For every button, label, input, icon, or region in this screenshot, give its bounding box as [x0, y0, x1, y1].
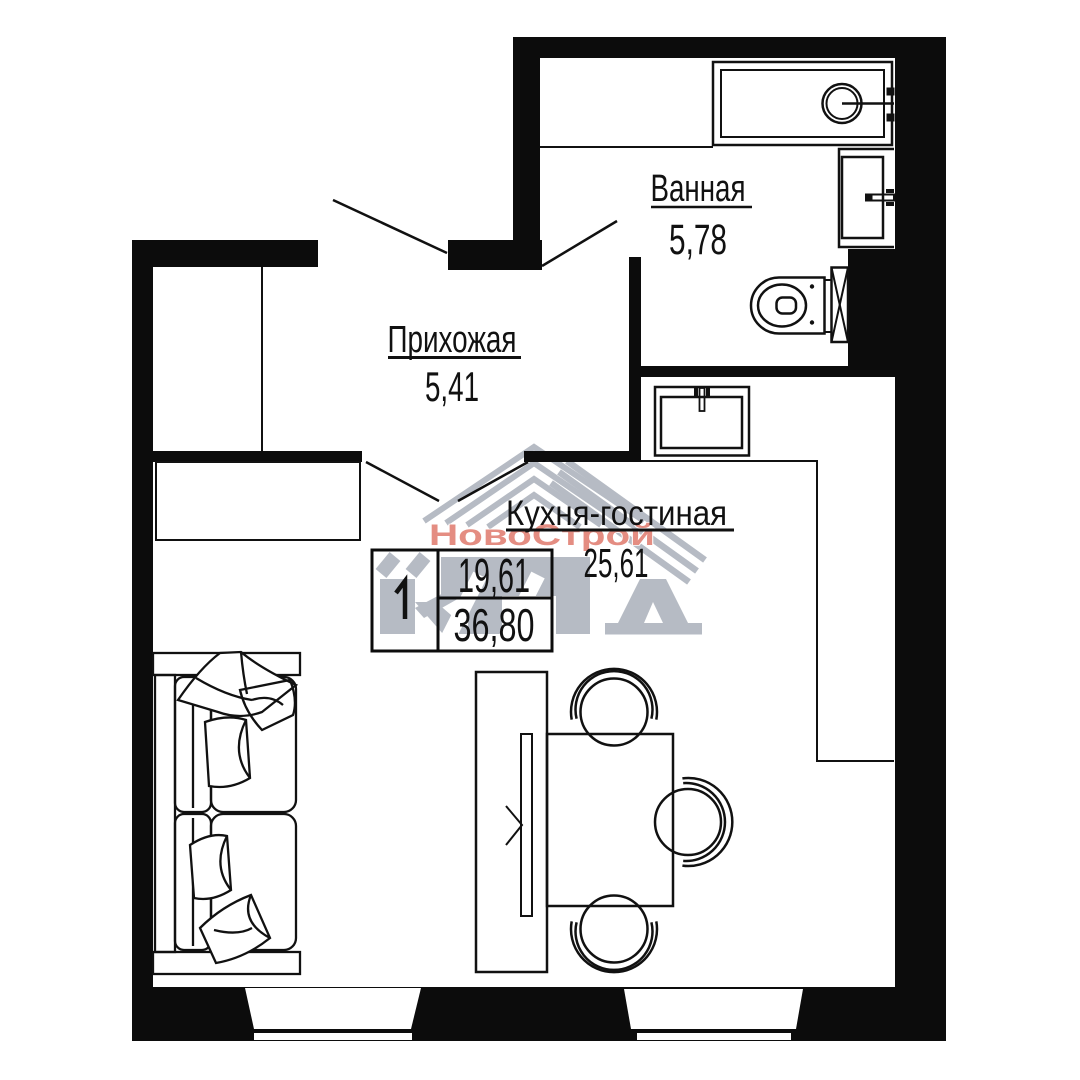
svg-text:25,61: 25,61: [584, 540, 649, 586]
svg-text:36,80: 36,80: [454, 599, 535, 651]
svg-text:Кухня-гостиная: Кухня-гостиная: [506, 494, 727, 533]
svg-text:19,61: 19,61: [458, 550, 530, 603]
svg-text:5,41: 5,41: [425, 363, 479, 410]
svg-text:Прихожая: Прихожая: [388, 319, 517, 361]
svg-text:5,78: 5,78: [669, 216, 727, 264]
svg-text:Ванная: Ванная: [651, 168, 746, 210]
